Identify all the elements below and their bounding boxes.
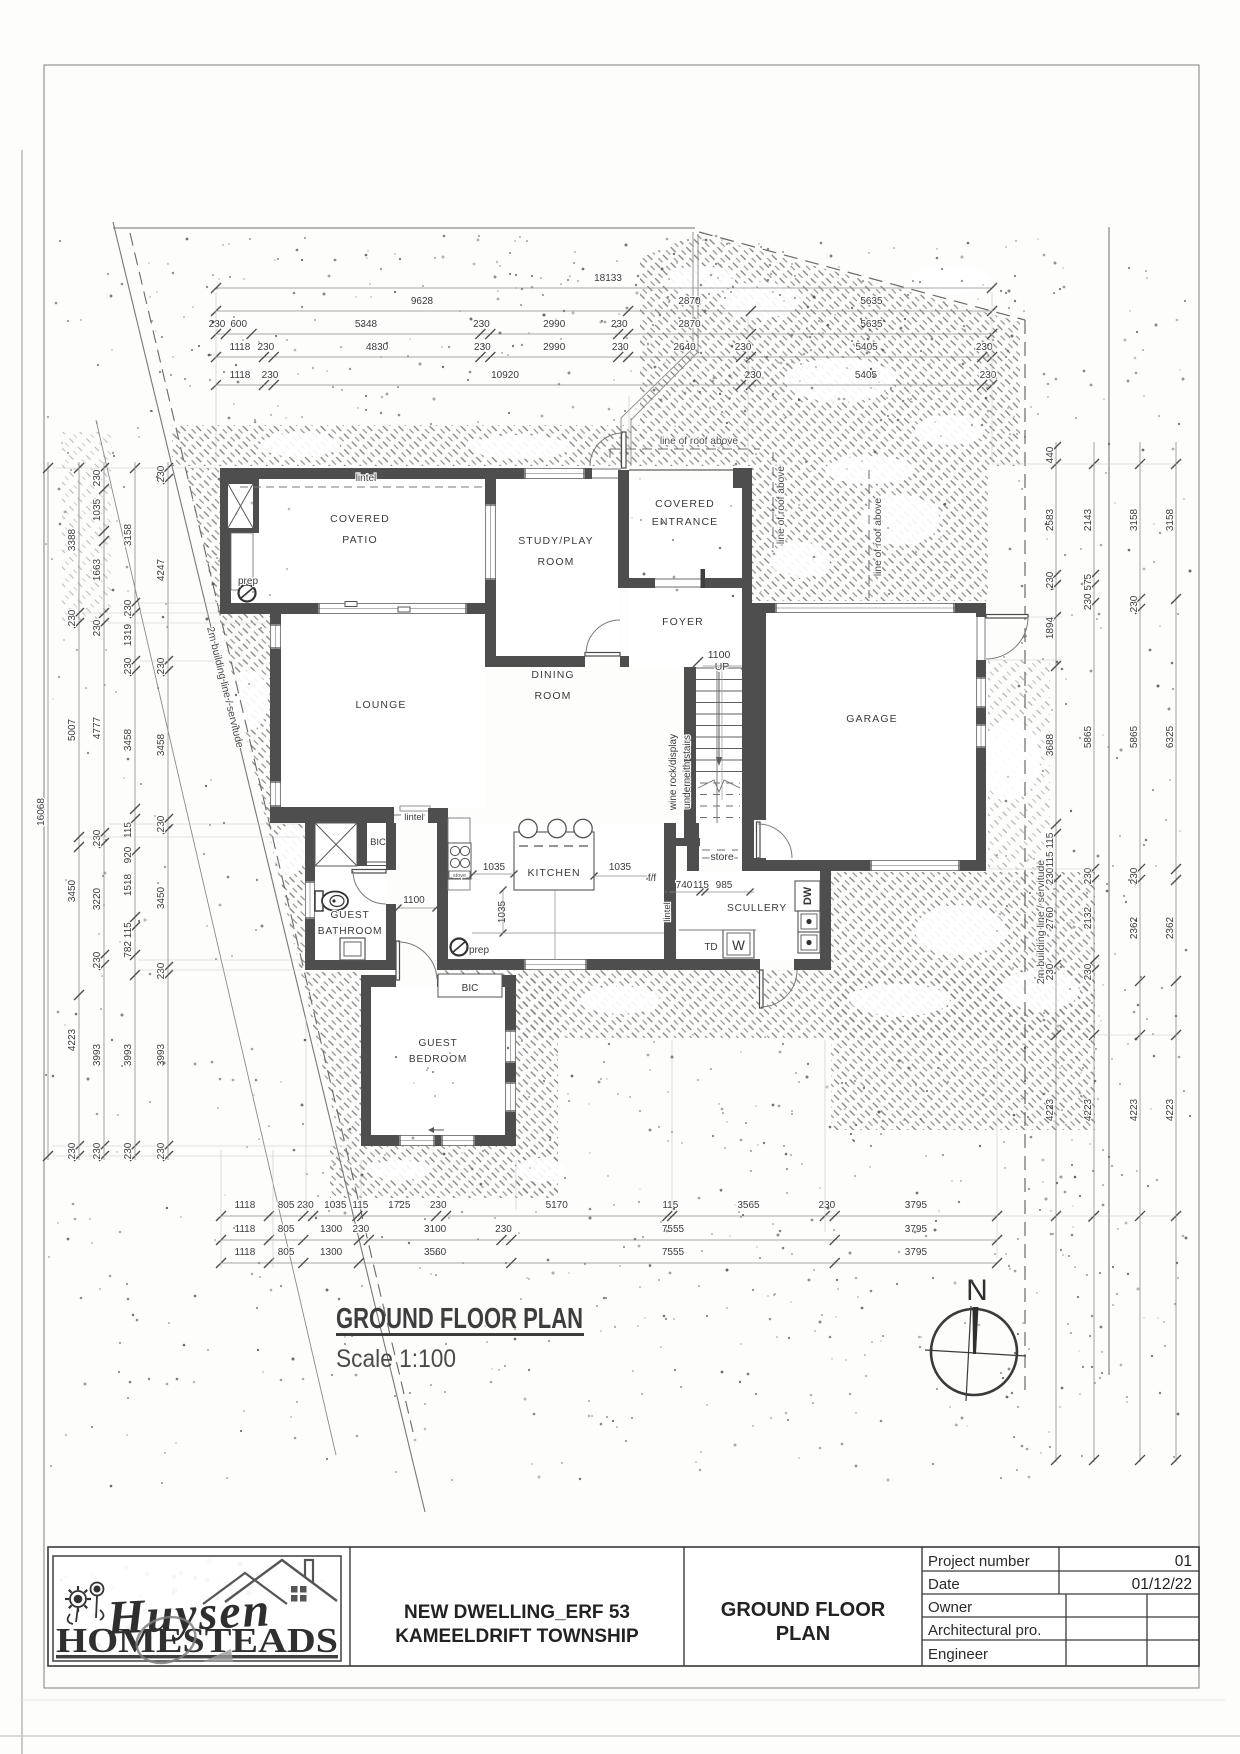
svg-text:DW: DW [802, 886, 814, 905]
svg-text:230: 230 [92, 1142, 103, 1159]
svg-text:805: 805 [278, 1247, 295, 1258]
svg-text:5635: 5635 [860, 319, 883, 330]
svg-text:2362: 2362 [1129, 916, 1140, 939]
svg-text:230: 230 [1129, 867, 1140, 884]
svg-text:DINING: DINING [531, 669, 574, 681]
svg-text:3795: 3795 [905, 1224, 928, 1235]
svg-text:COVERED: COVERED [330, 513, 390, 525]
svg-text:115: 115 [662, 1200, 678, 1211]
svg-text:230: 230 [474, 342, 491, 353]
svg-text:GROUND FLOOR PLAN: GROUND FLOOR PLAN [336, 1303, 583, 1335]
svg-text:2760: 2760 [1045, 906, 1056, 929]
svg-text:1100: 1100 [708, 649, 731, 661]
svg-text:4223: 4223 [1083, 1098, 1094, 1121]
svg-text:2990: 2990 [543, 319, 566, 330]
svg-text:01: 01 [1175, 1553, 1192, 1570]
svg-text:lintel: lintel [356, 473, 377, 484]
svg-text:230 575: 230 575 [1083, 573, 1094, 610]
svg-text:3688: 3688 [1045, 733, 1056, 756]
svg-text:3565: 3565 [737, 1200, 760, 1211]
svg-text:Date: Date [928, 1576, 960, 1593]
svg-text:230: 230 [258, 342, 275, 353]
svg-text:230: 230 [1045, 867, 1056, 884]
svg-text:805: 805 [278, 1224, 295, 1235]
svg-text:1118: 1118 [235, 1200, 256, 1211]
svg-text:5635: 5635 [860, 296, 883, 307]
svg-text:5170: 5170 [546, 1200, 569, 1211]
svg-text:KAMEELDRIFT TOWNSHIP: KAMEELDRIFT TOWNSHIP [395, 1626, 639, 1647]
svg-text:230: 230 [1083, 963, 1094, 980]
svg-text:TD: TD [704, 942, 717, 953]
svg-text:1035: 1035 [92, 498, 103, 521]
svg-text:2583: 2583 [1045, 508, 1056, 531]
svg-text:2362: 2362 [1165, 916, 1176, 939]
svg-text:6325: 6325 [1165, 725, 1176, 748]
svg-text:230: 230 [1045, 963, 1056, 980]
svg-text:7555: 7555 [662, 1224, 685, 1235]
svg-text:3450: 3450 [156, 886, 167, 909]
svg-text:SCULLERY: SCULLERY [727, 903, 787, 914]
svg-text:440: 440 [1045, 446, 1056, 463]
svg-text:230: 230 [92, 829, 103, 846]
svg-text:230: 230 [818, 1200, 835, 1211]
svg-text:230: 230 [156, 1142, 167, 1159]
svg-text:line of roof above: line of roof above [660, 436, 738, 447]
svg-text:PLAN: PLAN [776, 1623, 830, 1645]
svg-text:1118: 1118 [230, 370, 251, 381]
svg-text:230: 230 [123, 599, 134, 616]
svg-text:stove: stove [453, 873, 466, 879]
svg-text:230: 230 [473, 319, 490, 330]
svg-text:1035: 1035 [497, 900, 508, 923]
svg-text:230: 230 [495, 1224, 512, 1235]
svg-text:230: 230 [611, 319, 628, 330]
svg-text:5405: 5405 [855, 342, 878, 353]
svg-text:prep: prep [238, 576, 258, 587]
svg-text:GROUND FLOOR: GROUND FLOOR [721, 1599, 886, 1621]
svg-text:2870: 2870 [678, 319, 701, 330]
svg-text:1035: 1035 [483, 862, 506, 873]
svg-text:115: 115 [352, 1200, 368, 1211]
svg-text:5348: 5348 [355, 319, 378, 330]
svg-text:3100: 3100 [424, 1224, 447, 1235]
svg-text:3220: 3220 [92, 887, 103, 910]
svg-text:985: 985 [716, 880, 733, 891]
svg-text:f/f: f/f [648, 873, 657, 884]
svg-text:4223: 4223 [1165, 1098, 1176, 1121]
svg-text:3795: 3795 [905, 1247, 928, 1258]
svg-text:BEDROOM: BEDROOM [409, 1054, 467, 1065]
svg-text:4777: 4777 [92, 716, 103, 739]
svg-text:230: 230 [745, 370, 762, 381]
svg-text:3458: 3458 [156, 733, 167, 756]
svg-text:Project number: Project number [928, 1553, 1030, 1570]
svg-text:230: 230 [1129, 595, 1140, 612]
svg-text:10920: 10920 [491, 370, 519, 381]
svg-text:GUEST: GUEST [330, 910, 369, 921]
svg-text:230: 230 [980, 370, 997, 381]
svg-text:FOYER: FOYER [662, 616, 704, 628]
svg-text:4223: 4223 [1045, 1098, 1056, 1121]
svg-text:230: 230 [156, 657, 167, 674]
svg-text:Scale 1:100: Scale 1:100 [336, 1345, 456, 1373]
svg-text:1300: 1300 [320, 1247, 343, 1258]
svg-text:5007: 5007 [67, 718, 78, 741]
svg-text:N: N [966, 1274, 988, 1307]
svg-text:GARAGE: GARAGE [846, 713, 898, 725]
svg-text:BIC: BIC [462, 983, 479, 994]
svg-text:BATHROOM: BATHROOM [318, 926, 383, 937]
svg-text:805: 805 [278, 1200, 295, 1211]
svg-text:1300: 1300 [320, 1224, 343, 1235]
svg-text:lintel: lintel [662, 902, 673, 922]
svg-text:2143: 2143 [1083, 508, 1094, 531]
svg-text:1100: 1100 [403, 895, 425, 906]
svg-text:3158: 3158 [1129, 508, 1140, 531]
svg-text:600: 600 [230, 319, 247, 330]
svg-text:W: W [732, 938, 745, 953]
svg-text:9628: 9628 [411, 296, 434, 307]
svg-text:1518: 1518 [123, 873, 134, 896]
svg-text:STUDY/PLAY: STUDY/PLAY [518, 535, 594, 547]
svg-text:PATIO: PATIO [342, 534, 377, 546]
svg-text:1118: 1118 [230, 342, 251, 353]
svg-text:230: 230 [976, 342, 993, 353]
svg-text:1319: 1319 [123, 623, 134, 646]
svg-text:GUEST: GUEST [418, 1038, 457, 1049]
svg-text:ROOM: ROOM [534, 690, 571, 702]
svg-text:230: 230 [430, 1200, 447, 1211]
svg-text:230: 230 [1083, 867, 1094, 884]
svg-text:230: 230 [612, 342, 629, 353]
svg-text:4223: 4223 [1129, 1098, 1140, 1121]
svg-text:UP: UP [715, 661, 730, 673]
svg-text:2640: 2640 [673, 342, 696, 353]
svg-text:BIC: BIC [370, 837, 386, 848]
svg-text:18133: 18133 [594, 273, 622, 284]
svg-text:3450: 3450 [67, 879, 78, 902]
svg-text:7555: 7555 [662, 1247, 685, 1258]
svg-text:wine rock/display: wine rock/display [668, 734, 679, 811]
svg-text:230: 230 [297, 1200, 314, 1211]
svg-text:COVERED: COVERED [655, 498, 715, 510]
svg-text:230: 230 [123, 1142, 134, 1159]
svg-text:230: 230 [123, 657, 134, 674]
svg-text:230: 230 [92, 619, 103, 636]
svg-text:230: 230 [735, 342, 752, 353]
svg-text:920: 920 [123, 846, 134, 863]
svg-text:line of roof above: line of roof above [776, 466, 787, 544]
svg-text:Owner: Owner [928, 1599, 972, 1616]
svg-text:line of roof above: line of roof above [873, 498, 884, 576]
svg-text:230: 230 [209, 319, 226, 330]
svg-text:store: store [710, 851, 734, 863]
svg-text:230: 230 [262, 370, 279, 381]
svg-text:230: 230 [1045, 571, 1056, 588]
svg-text:prep: prep [469, 945, 489, 956]
svg-text:Architectural pro.: Architectural pro. [928, 1622, 1041, 1639]
svg-text:4223: 4223 [67, 1028, 78, 1051]
svg-text:3795: 3795 [905, 1200, 928, 1211]
svg-text:3158: 3158 [1165, 508, 1176, 531]
svg-text:5865: 5865 [1129, 725, 1140, 748]
svg-text:1663: 1663 [92, 558, 103, 581]
svg-text:1035: 1035 [609, 862, 632, 873]
svg-text:3993: 3993 [123, 1043, 134, 1066]
svg-text:ROOM: ROOM [537, 556, 574, 568]
svg-text:3993: 3993 [92, 1043, 103, 1066]
svg-text:2870: 2870 [678, 296, 701, 307]
svg-text:01/12/22: 01/12/22 [1132, 1576, 1192, 1593]
svg-text:1118: 1118 [235, 1247, 256, 1258]
svg-text:2990: 2990 [543, 342, 566, 353]
svg-text:740: 740 [676, 880, 693, 891]
svg-text:230: 230 [67, 1142, 78, 1159]
svg-text:Engineer: Engineer [928, 1646, 988, 1663]
svg-text:HOMESTEADS: HOMESTEADS [56, 1621, 338, 1660]
svg-text:1035: 1035 [324, 1200, 347, 1211]
svg-text:230: 230 [156, 962, 167, 979]
svg-text:2132: 2132 [1083, 906, 1094, 929]
svg-text:782 115: 782 115 [123, 922, 134, 958]
svg-text:NEW DWELLING_ERF 53: NEW DWELLING_ERF 53 [404, 1602, 630, 1623]
svg-text:underneith stairs: underneith stairs [682, 735, 693, 809]
svg-text:230: 230 [92, 469, 103, 486]
svg-text:1118: 1118 [235, 1224, 256, 1235]
svg-text:3560: 3560 [424, 1247, 447, 1258]
svg-text:LOUNGE: LOUNGE [356, 699, 407, 711]
svg-text:230: 230 [92, 951, 103, 968]
svg-text:5865: 5865 [1083, 725, 1094, 748]
svg-text:3458: 3458 [123, 728, 134, 751]
svg-text:16068: 16068 [36, 798, 47, 826]
svg-text:lintel: lintel [404, 812, 424, 823]
svg-text:115 115: 115 115 [1045, 832, 1056, 867]
svg-text:230: 230 [353, 1224, 370, 1235]
svg-text:230: 230 [67, 609, 78, 626]
svg-text:3158: 3158 [123, 523, 134, 546]
svg-text:KITCHEN: KITCHEN [527, 867, 580, 879]
svg-text:1894: 1894 [1045, 616, 1056, 639]
svg-text:3388: 3388 [67, 528, 78, 551]
svg-text:4830: 4830 [366, 342, 389, 353]
svg-text:4247: 4247 [156, 558, 167, 581]
